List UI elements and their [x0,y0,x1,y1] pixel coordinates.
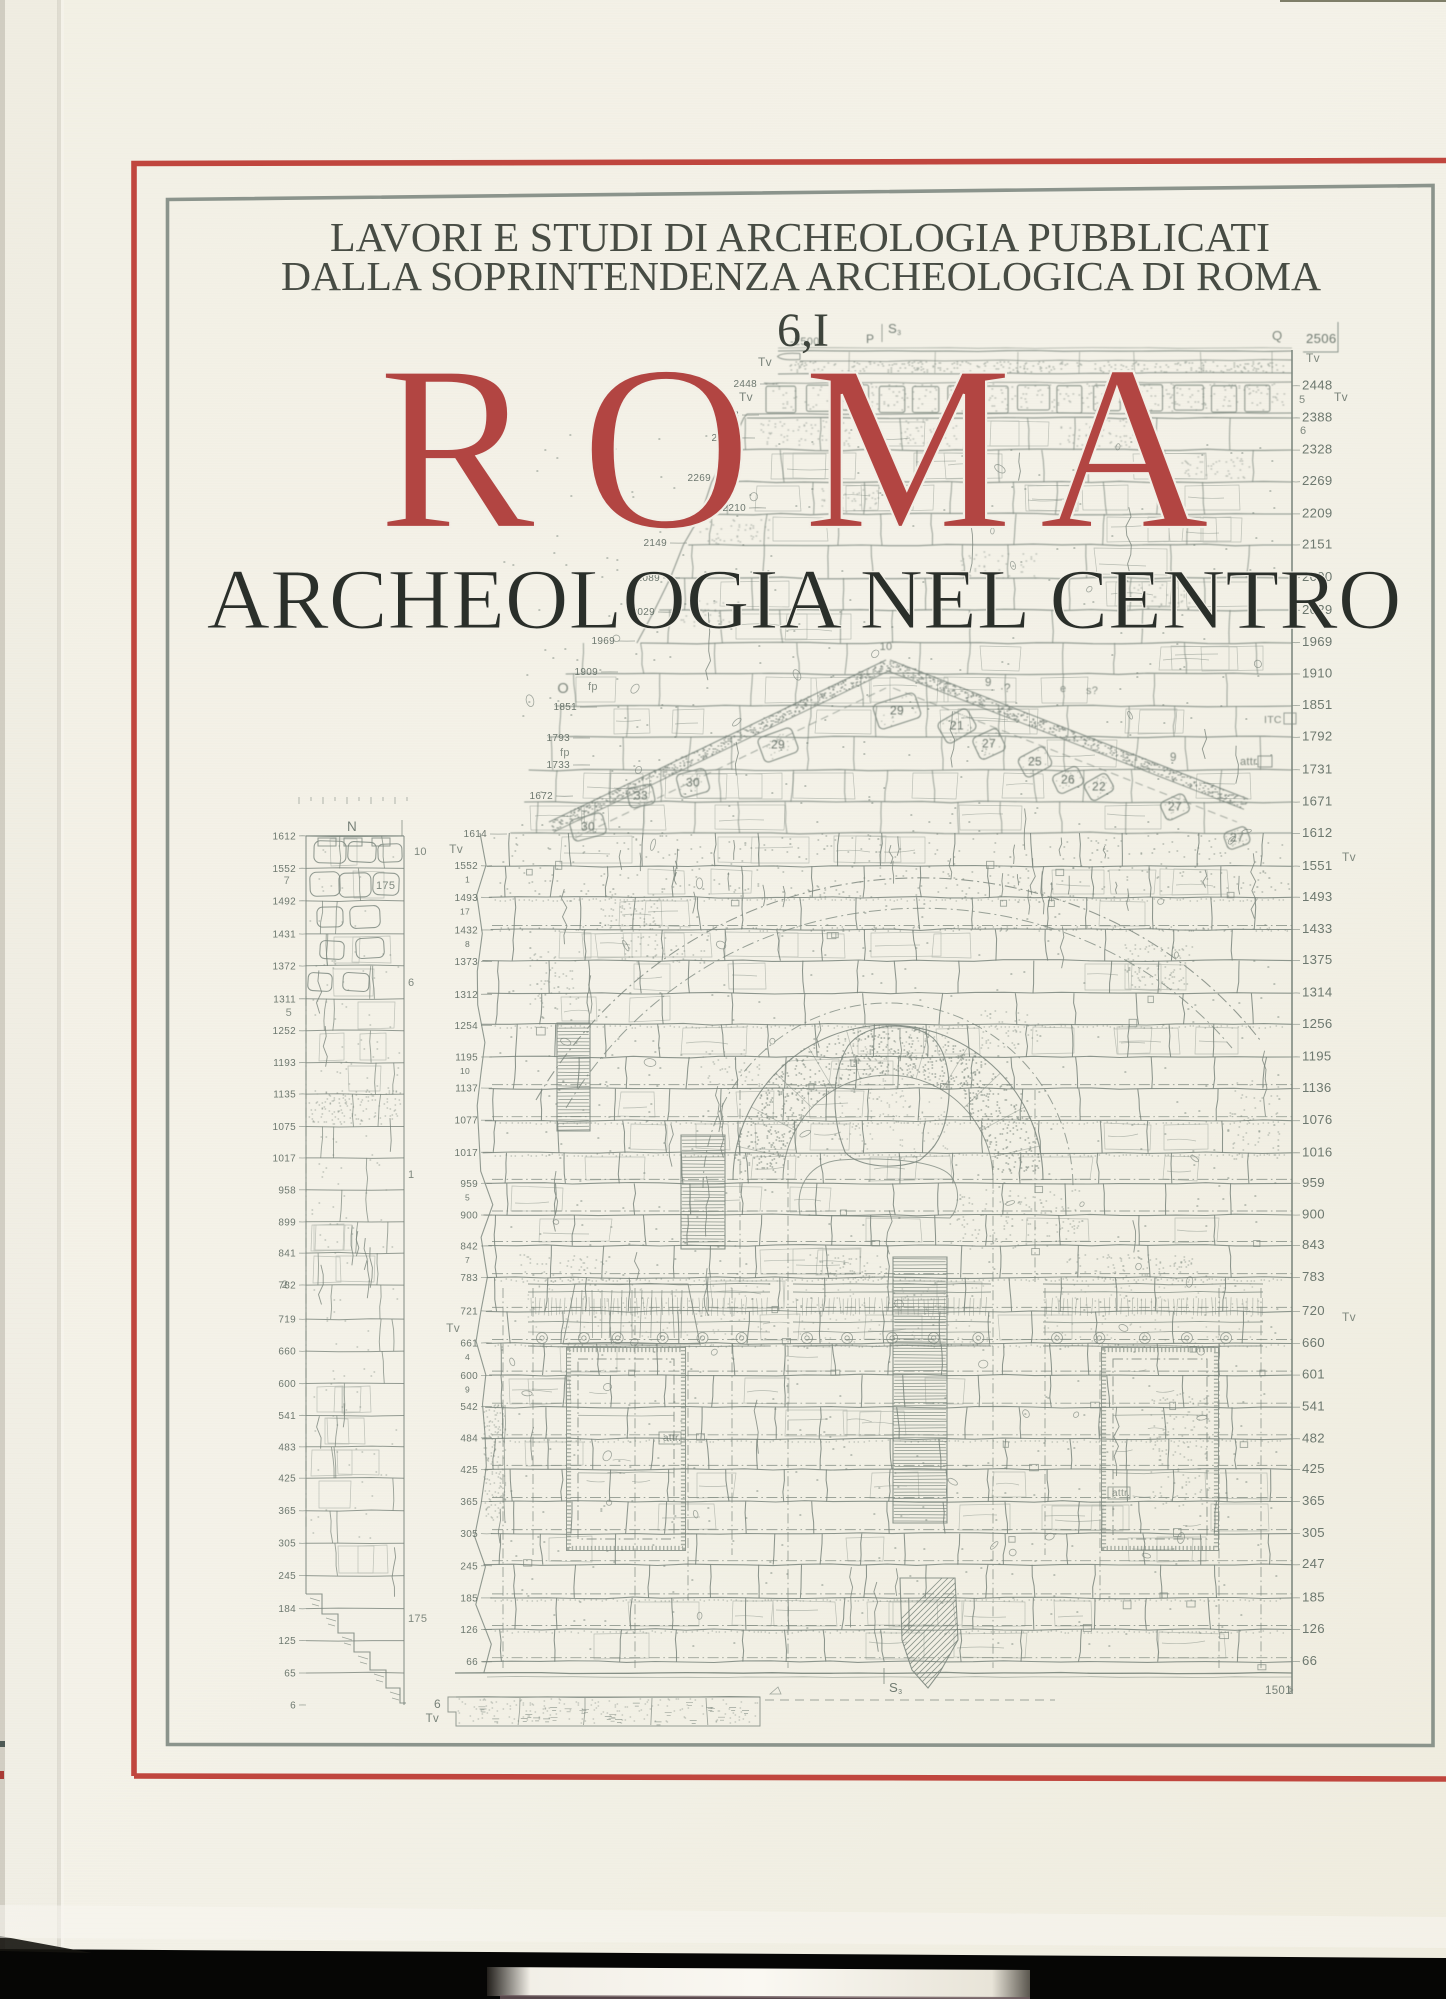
svg-text:1492: 1492 [273,896,297,907]
svg-text:1672: 1672 [530,791,554,802]
svg-text:4: 4 [465,1352,470,1362]
svg-text:6: 6 [290,1701,296,1712]
svg-text:1252: 1252 [273,1026,297,1037]
svg-text:245: 245 [460,1561,478,1572]
svg-text:959: 959 [1302,1175,1325,1190]
svg-text:2506: 2506 [1306,331,1337,346]
svg-text:Tv: Tv [1334,390,1348,404]
svg-text:6: 6 [408,977,414,989]
svg-text:1254: 1254 [455,1021,479,1032]
svg-text:541: 541 [278,1411,296,1422]
svg-text:1077: 1077 [455,1116,479,1127]
svg-text:175: 175 [376,880,395,892]
svg-text:7: 7 [465,1255,470,1265]
svg-text:1851: 1851 [1302,697,1333,712]
svg-text:1910: 1910 [1302,666,1333,681]
svg-text:542: 542 [460,1402,478,1413]
svg-text:841: 841 [278,1249,296,1260]
svg-text:900: 900 [1302,1207,1325,1222]
svg-text:1501: 1501 [1265,1685,1292,1697]
svg-text:1136: 1136 [1302,1080,1332,1095]
svg-text:1493: 1493 [1302,889,1333,904]
svg-text:9: 9 [465,1385,470,1395]
svg-text:720: 720 [1302,1303,1325,1318]
svg-text:1431: 1431 [273,929,297,940]
svg-text:1909: 1909 [575,667,599,678]
svg-text:721: 721 [460,1306,478,1317]
svg-text:2328: 2328 [1302,442,1333,457]
svg-text:1792: 1792 [1302,729,1333,744]
svg-text:305: 305 [460,1529,478,1540]
svg-text:1075: 1075 [273,1122,297,1133]
svg-text:483: 483 [278,1442,296,1453]
svg-text:958: 958 [278,1185,296,1196]
svg-text:6: 6 [434,1697,441,1711]
svg-text:1731: 1731 [1302,761,1333,776]
svg-text:Tv: Tv [758,355,772,369]
svg-text:1195: 1195 [455,1053,478,1064]
svg-text:245: 245 [278,1571,296,1582]
svg-text:1017: 1017 [455,1148,479,1159]
svg-text:1373: 1373 [455,957,479,968]
svg-text:Tv: Tv [446,1321,460,1335]
svg-text:601: 601 [1302,1367,1325,1382]
svg-text:2388: 2388 [1302,410,1333,425]
svg-text:Tv: Tv [1342,850,1356,864]
svg-text:DALLA SOPRINTENDENZA ARCHEOLOG: DALLA SOPRINTENDENZA ARCHEOLOGICA DI ROM… [281,253,1321,299]
svg-text:365: 365 [460,1497,478,1508]
svg-text:1733: 1733 [547,760,571,771]
svg-text:10: 10 [414,846,427,858]
svg-text:1: 1 [408,1169,414,1181]
svg-text:425: 425 [460,1465,478,1476]
svg-text:29: 29 [771,738,785,752]
svg-text:1551: 1551 [1302,858,1333,873]
svg-text:842: 842 [460,1242,478,1253]
svg-text:7: 7 [284,875,290,887]
svg-text:1137: 1137 [455,1084,478,1095]
svg-text:1433: 1433 [1302,921,1333,936]
svg-text:1372: 1372 [273,961,297,972]
svg-text:1: 1 [465,875,470,885]
svg-text:33: 33 [634,789,648,803]
svg-text:1312: 1312 [455,990,479,1001]
svg-text:Tv: Tv [449,842,463,856]
svg-text:600: 600 [278,1379,296,1390]
svg-text:25: 25 [1028,755,1042,769]
svg-text:22: 22 [1092,780,1106,794]
svg-text:661: 661 [460,1339,478,1350]
svg-text:1493: 1493 [455,893,479,904]
svg-text:125: 125 [278,1636,296,1647]
svg-text:66: 66 [1302,1653,1317,1668]
svg-text:1016: 1016 [1302,1144,1333,1159]
svg-text:2269: 2269 [1302,473,1333,488]
svg-text:305: 305 [278,1539,296,1550]
svg-text:660: 660 [1302,1335,1325,1350]
svg-text:27: 27 [982,737,996,751]
svg-text:e: e [1060,683,1066,695]
svg-text:2448: 2448 [1302,377,1333,392]
svg-text:175: 175 [408,1613,427,1625]
svg-text:30: 30 [581,820,595,834]
svg-text:1311: 1311 [273,994,296,1005]
svg-text:425: 425 [278,1474,296,1485]
svg-text:fp: fp [560,747,570,759]
svg-text:1135: 1135 [273,1090,296,1101]
svg-text:1076: 1076 [1302,1112,1333,1127]
svg-text:8: 8 [465,939,470,949]
svg-text:1256: 1256 [1302,1016,1333,1031]
svg-text:attr.: attr. [1240,756,1260,768]
svg-text:65: 65 [284,1669,296,1680]
svg-text:425: 425 [1302,1461,1325,1476]
svg-text:1614: 1614 [464,829,488,840]
svg-text:482: 482 [1302,1430,1325,1445]
svg-text:26: 26 [1061,773,1075,787]
svg-text:5: 5 [1299,394,1305,406]
svg-text:719: 719 [278,1315,296,1326]
svg-text:1552: 1552 [455,861,479,872]
svg-text:660: 660 [278,1347,296,1358]
svg-text:66: 66 [466,1657,478,1668]
svg-text:·?: ·? [1000,683,1011,695]
svg-text:365: 365 [1302,1493,1325,1508]
svg-text:843: 843 [1302,1237,1325,1252]
svg-text:1671: 1671 [1302,794,1333,809]
svg-text:fp: fp [588,681,598,693]
svg-text:Tv: Tv [426,1713,439,1725]
svg-text:9: 9 [1170,752,1177,764]
svg-text:126: 126 [1302,1621,1325,1636]
svg-text:17: 17 [460,906,470,916]
svg-text:5: 5 [286,1007,292,1019]
svg-text:1612: 1612 [273,831,297,842]
svg-text:1552: 1552 [273,864,297,875]
svg-text:2151: 2151 [1302,536,1333,551]
svg-text:10: 10 [460,1066,470,1076]
svg-text:185: 185 [460,1593,478,1604]
svg-text:2209: 2209 [1302,505,1333,520]
svg-text:184: 184 [278,1604,296,1615]
svg-text:Tv: Tv [1342,1310,1356,1324]
svg-text:29: 29 [890,704,904,718]
svg-text:1375: 1375 [1302,952,1333,967]
svg-text:600: 600 [460,1371,478,1382]
svg-text:30: 30 [686,776,700,790]
svg-text:247: 247 [1302,1556,1325,1571]
svg-text:1612: 1612 [1302,825,1333,840]
svg-text:O: O [557,681,568,697]
svg-text:783: 783 [460,1273,478,1284]
svg-text:305: 305 [1302,1525,1325,1540]
svg-text:1193: 1193 [273,1058,296,1069]
svg-text:Tv: Tv [1306,351,1320,365]
svg-text:185: 185 [1302,1589,1325,1604]
svg-text:1314: 1314 [1302,985,1333,1000]
svg-text:1017: 1017 [273,1153,297,1164]
svg-text:1851: 1851 [554,702,578,713]
svg-text:1432: 1432 [455,926,479,937]
svg-text:ITC: ITC [1264,714,1282,726]
svg-text:484: 484 [460,1433,478,1444]
svg-text:541: 541 [1302,1399,1325,1414]
svg-text:1195: 1195 [1302,1049,1332,1064]
svg-text:9: 9 [985,677,992,689]
svg-text:783: 783 [1302,1269,1325,1284]
svg-text:959: 959 [460,1179,478,1190]
svg-text:6: 6 [1300,425,1306,437]
svg-text:ARCHEOLOGIA NEL CENTRO: ARCHEOLOGIA NEL CENTRO [207,551,1402,647]
svg-text:5: 5 [465,1192,470,1202]
svg-text:Q: Q [1272,328,1283,343]
svg-text:N: N [347,819,357,834]
svg-text:899: 899 [278,1217,296,1228]
svg-text:126: 126 [460,1625,478,1636]
svg-text:1793: 1793 [547,733,571,744]
svg-text:365: 365 [278,1506,296,1517]
svg-text:2: 2 [282,1279,288,1291]
svg-text:900: 900 [460,1211,478,1222]
